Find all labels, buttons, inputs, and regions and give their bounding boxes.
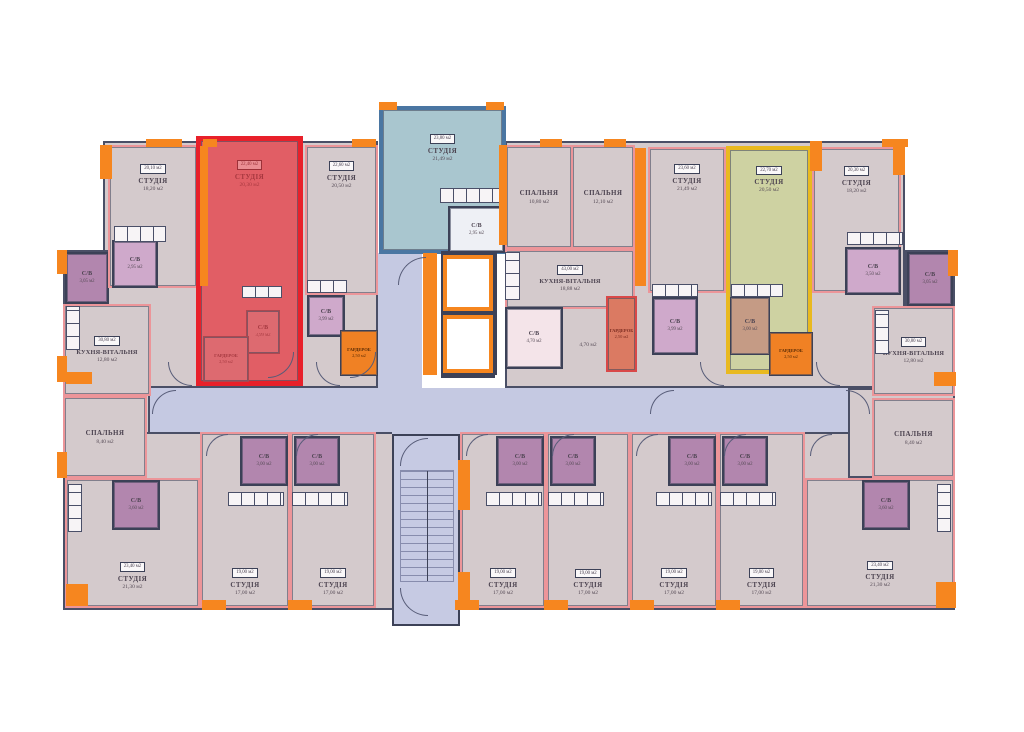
bath-corner-br: С/В3,60 м2	[862, 480, 910, 530]
bath-bottom-6-label: С/В3,00 м2	[737, 454, 752, 467]
room-area: 3,00 м2	[737, 462, 752, 467]
orange-wall-accent	[458, 572, 470, 608]
apartment-red-studio-label: 22,40 м2СТУДІЯ20,30 м2	[235, 160, 264, 188]
room-area: 3,00 м2	[512, 462, 527, 467]
bath-studio-2-label: С/В3,99 м2	[318, 309, 333, 322]
bedroom-right: СПАЛЬНЯ8,40 м2	[872, 398, 955, 478]
room-name: С/В	[881, 498, 892, 505]
bath-center-label: С/В4,70 м2	[526, 331, 541, 344]
bath-bottom-5: С/В3,00 м2	[668, 436, 716, 486]
kitchen-fixtures	[505, 252, 520, 300]
studio-top-1-label: 20,10 м2СТУДІЯ18,20 м2	[138, 164, 167, 192]
room-name: ГАРДЕРОБ	[214, 353, 238, 358]
room-name: СТУДІЯ	[659, 581, 688, 589]
apartment-area-badge: 23,60 м2	[674, 164, 699, 174]
room-area: 20,50 м2	[759, 187, 779, 193]
room-area: 3,99 м2	[318, 317, 333, 322]
bath-yellow: С/В3,00 м2	[730, 297, 770, 355]
wardrobe-red-label: ГАРДЕРОБ2,50 м2	[214, 353, 238, 364]
room-name: КУХНЯ-ВІТАЛЬНЯ	[883, 350, 944, 357]
orange-wall-accent	[200, 146, 208, 286]
room-area: 3,00 м2	[684, 462, 699, 467]
room-area: 3,50 м2	[865, 272, 880, 277]
room-area: 3,00 м2	[256, 462, 271, 467]
room-name: С/В	[131, 498, 142, 505]
orange-wall-accent	[66, 372, 92, 384]
studio-bottom-2-label: 19,00 м2СТУДІЯ17,00 м2	[318, 568, 347, 596]
room-name: СТУДІЯ	[118, 575, 147, 583]
orange-wall-accent	[630, 600, 654, 610]
kitchen-fixtures	[114, 226, 166, 242]
room-name: С/В	[670, 319, 681, 326]
room-area: 17,00 м2	[578, 590, 598, 596]
orange-wall-accent	[499, 145, 507, 245]
room-name: СТУДІЯ	[428, 147, 457, 155]
room-area: 3,05 м2	[79, 279, 94, 284]
room-name: СТУДІЯ	[573, 581, 602, 589]
kitchen-fixtures	[307, 280, 347, 293]
room-area: 21,49 м2	[677, 186, 697, 192]
room-area: 2,50 м2	[784, 355, 798, 360]
room-name: СПАЛЬНЯ	[894, 430, 933, 438]
wardrobe-center: ГАРДЕРОБ2,50 м2	[606, 296, 637, 372]
orange-wall-accent	[146, 139, 182, 147]
kitchen-fixtures	[228, 492, 284, 506]
bedroom-center-2-label: СПАЛЬНЯ12,10 м2	[584, 189, 623, 204]
room-area: 21,30 м2	[123, 584, 143, 590]
bedroom-right-label: СПАЛЬНЯ8,40 м2	[894, 430, 933, 445]
room-name: СПАЛЬНЯ	[584, 189, 623, 197]
room-area: 17,00 м2	[752, 590, 772, 596]
wall-segment	[493, 253, 497, 375]
studio-corner-br-label: 23,40 м2СТУДІЯ21,30 м2	[865, 561, 894, 589]
bath-bottom-2-label: С/В3,00 м2	[309, 454, 324, 467]
room-name: СТУДІЯ	[672, 177, 701, 185]
bedroom-left-label: СПАЛЬНЯ8,40 м2	[86, 429, 125, 444]
bath-corner-bl-label: С/В3,60 м2	[128, 498, 143, 511]
room-name: КУХНЯ-ВІТАЛЬНЯ	[76, 349, 137, 356]
kitchen-living-left-label: 30,80 м2КУХНЯ-ВІТАЛЬНЯ12,80 м2	[76, 336, 137, 363]
apartment-area-badge: 43,00 м2	[557, 265, 582, 275]
kitchen-fixtures	[847, 232, 903, 245]
kitchen-fixtures	[242, 286, 282, 298]
orange-wall-accent	[288, 600, 312, 610]
orange-wall-accent	[934, 372, 956, 386]
orange-wall-accent	[948, 250, 958, 276]
bath-blue-label: С/В2,95 м2	[469, 223, 484, 236]
studio-bottom-1-label: 19,00 м2СТУДІЯ17,00 м2	[230, 568, 259, 596]
kitchen-living-center-label: 43,00 м2КУХНЯ-ВІТАЛЬНЯ18,88 м2	[539, 265, 600, 292]
room-area: 3,00 м2	[742, 327, 757, 332]
studio-bottom-3-label: 19,00 м2СТУДІЯ17,00 м2	[488, 568, 517, 596]
floor-plan-image: С/В3,05 м230,80 м2КУХНЯ-ВІТАЛЬНЯ12,80 м2…	[0, 0, 1024, 732]
room-name: С/В	[745, 319, 756, 326]
room-area: 3,60 м2	[128, 506, 143, 511]
apartment-area-badge: 22,40 м2	[237, 160, 262, 170]
bedroom-center-1: СПАЛЬНЯ10,80 м2	[505, 145, 573, 249]
studio-top-2-label: 22,60 м2СТУДІЯ20,50 м2	[327, 161, 356, 189]
room-area: 3,99 м2	[255, 333, 270, 338]
wall-segment	[441, 251, 495, 255]
orange-wall-accent	[936, 582, 956, 608]
orange-wall-accent	[540, 139, 562, 147]
room-name: С/В	[515, 454, 526, 461]
apartment-area-badge: 22,70 м2	[756, 166, 781, 176]
room-name: С/В	[471, 223, 482, 230]
bath-bottom-3-label: С/В3,00 м2	[512, 454, 527, 467]
room-area: 2,95 м2	[127, 265, 142, 270]
room-area: 12,10 м2	[593, 199, 613, 205]
room-name: С/В	[529, 331, 540, 338]
bath-left-top: С/В3,05 м2	[65, 252, 109, 304]
orange-wall-accent	[100, 145, 112, 179]
room-name: С/В	[868, 264, 879, 271]
kitchen-fixtures	[292, 492, 348, 506]
room-area: 20,30 м2	[240, 182, 260, 188]
orange-wall-accent	[893, 145, 905, 175]
room-area: 17,00 м2	[235, 590, 255, 596]
hall-area-label: 4,70 м2	[566, 342, 610, 352]
orange-wall-accent	[57, 452, 67, 478]
apartment-yellow-studio-label: 22,70 м2СТУДІЯ20,50 м2	[754, 166, 783, 194]
room-name: ГАРДЕРОБ	[779, 348, 803, 353]
kitchen-fixtures	[652, 284, 698, 297]
apartment-area-badge: 19,00 м2	[661, 568, 686, 578]
room-area: 17,00 м2	[493, 590, 513, 596]
wardrobe-yellow-label: ГАРДЕРОБ2,50 м2	[779, 348, 803, 359]
room-name: СТУДІЯ	[842, 179, 871, 187]
room-name: СТУДІЯ	[230, 581, 259, 589]
kitchen-fixtures	[548, 492, 604, 506]
bedroom-center-1-label: СПАЛЬНЯ10,80 м2	[520, 189, 559, 204]
bath-red-label: С/В3,99 м2	[255, 325, 270, 338]
room-area: 18,20 м2	[143, 186, 163, 192]
orange-wall-accent	[458, 460, 470, 510]
stairs-flight	[400, 470, 454, 582]
kitchen-fixtures	[66, 306, 80, 350]
apartment-area-badge: 19,00 м2	[490, 568, 515, 578]
room-area: 3,00 м2	[309, 462, 324, 467]
room-name: С/В	[925, 272, 936, 279]
bath-corner-bl: С/В3,60 м2	[112, 480, 160, 530]
orange-wall-accent	[486, 102, 504, 110]
room-area: 8,40 м2	[96, 439, 113, 445]
bedroom-left: СПАЛЬНЯ8,40 м2	[63, 396, 147, 478]
kitchen-living-right-label: 30,80 м2КУХНЯ-ВІТАЛЬНЯ12,80 м2	[883, 337, 944, 364]
bath-studio-1-label: С/В2,95 м2	[127, 257, 142, 270]
room-area: 2,50 м2	[219, 360, 233, 365]
apartment-area-badge: 19,00 м2	[232, 568, 257, 578]
studio-top-2: 22,60 м2СТУДІЯ20,50 м2	[305, 145, 378, 295]
apartment-area-badge: 22,60 м2	[329, 161, 354, 171]
elevator-shaft	[443, 255, 493, 311]
bath-bottom-3: С/В3,00 м2	[496, 436, 544, 486]
apartment-blue-studio-label: 23,80 м2СТУДІЯ21,49 м2	[428, 134, 457, 162]
bath-right-top: С/В3,05 м2	[907, 252, 953, 306]
studio-top-3: 23,60 м2СТУДІЯ21,49 м2	[648, 147, 726, 293]
room-area: 18,20 м2	[847, 188, 867, 194]
room-area: 21,30 м2	[870, 582, 890, 588]
room-area: 3,05 м2	[922, 280, 937, 285]
orange-wall-accent	[379, 102, 397, 110]
apartment-area-badge: 30,80 м2	[94, 336, 119, 346]
bath-studio-1: С/В2,95 м2	[112, 240, 158, 288]
kitchen-fixtures	[486, 492, 542, 506]
room-name: СТУДІЯ	[318, 581, 347, 589]
room-area: 20,50 м2	[332, 183, 352, 189]
room-area: 3,99 м2	[667, 327, 682, 332]
apartment-area-badge: 19,00 м2	[320, 568, 345, 578]
bath-bottom-4-label: С/В3,00 м2	[565, 454, 580, 467]
bath-blue: С/В2,95 м2	[448, 206, 505, 253]
room-name: С/В	[258, 325, 269, 332]
elevator-shaft	[443, 315, 493, 373]
kitchen-fixtures	[731, 284, 783, 297]
bath-studio-3: С/В3,99 м2	[652, 297, 698, 355]
room-name: СПАЛЬНЯ	[86, 429, 125, 437]
kitchen-fixtures	[875, 310, 889, 354]
room-area: 12,80 м2	[97, 357, 117, 363]
bath-studio-4-label: С/В3,50 м2	[865, 264, 880, 277]
apartment-area-badge: 23,40 м2	[867, 561, 892, 571]
room-area: 21,49 м2	[433, 156, 453, 162]
orange-wall-accent	[635, 148, 646, 286]
orange-wall-accent	[57, 250, 67, 274]
studio-bottom-6-label: 19,00 м2СТУДІЯ17,00 м2	[747, 568, 776, 596]
wardrobe-red: ГАРДЕРОБ2,50 м2	[203, 336, 249, 382]
wardrobe-yellow: ГАРДЕРОБ2,50 м2	[769, 332, 813, 376]
bedroom-center-2: СПАЛЬНЯ12,10 м2	[571, 145, 635, 249]
bath-yellow-label: С/В3,00 м2	[742, 319, 757, 332]
kitchen-fixtures	[937, 484, 951, 532]
room-name: С/В	[687, 454, 698, 461]
orange-wall-accent	[544, 600, 568, 610]
studio-corner-bl-label: 23,40 м2СТУДІЯ21,30 м2	[118, 562, 147, 590]
room-name: СТУДІЯ	[488, 581, 517, 589]
apartment-area-badge: 19,00 м2	[575, 569, 600, 579]
bath-bottom-5-label: С/В3,00 м2	[684, 454, 699, 467]
studio-top-4-label: 20,30 м2СТУДІЯ18,20 м2	[842, 166, 871, 194]
room-area: 17,00 м2	[323, 590, 343, 596]
kitchen-fixtures	[68, 484, 82, 532]
kitchen-fixtures	[656, 492, 712, 506]
bath-right-top-label: С/В3,05 м2	[922, 272, 937, 285]
apartment-area-badge: 23,40 м2	[120, 562, 145, 572]
room-name: СТУДІЯ	[754, 178, 783, 186]
studio-bottom-4-label: 19,00 м2СТУДІЯ17,00 м2	[573, 569, 602, 597]
room-area: 2,95 м2	[469, 231, 484, 236]
room-area: 12,80 м2	[904, 358, 924, 364]
room-name: С/В	[321, 309, 332, 316]
apartment-area-badge: 30,80 м2	[901, 337, 926, 347]
kitchen-fixtures	[440, 188, 500, 203]
room-area: 8,40 м2	[905, 440, 922, 446]
orange-wall-accent	[202, 600, 226, 610]
orange-wall-accent	[352, 139, 376, 147]
room-area: 10,80 м2	[529, 199, 549, 205]
bath-red: С/В3,99 м2	[246, 310, 280, 354]
bath-center: С/В4,70 м2	[505, 307, 563, 369]
stairs-divider	[427, 471, 428, 581]
kitchen-fixtures	[720, 492, 776, 506]
floor-plan-screenshot: С/В3,05 м230,80 м2КУХНЯ-ВІТАЛЬНЯ12,80 м2…	[0, 0, 1024, 732]
room-name: СТУДІЯ	[138, 177, 167, 185]
bath-studio-4: С/В3,50 м2	[845, 247, 901, 295]
room-name: С/В	[130, 257, 141, 264]
studio-top-3-label: 23,60 м2СТУДІЯ21,49 м2	[672, 164, 701, 192]
room-name: СПАЛЬНЯ	[520, 189, 559, 197]
apartment-area-badge: 20,30 м2	[844, 166, 869, 176]
orange-wall-accent	[716, 600, 740, 610]
room-area: 2,50 м2	[615, 335, 629, 340]
apartment-area-badge: 20,10 м2	[140, 164, 165, 174]
room-name: С/В	[259, 454, 270, 461]
bath-bottom-1-label: С/В3,00 м2	[256, 454, 271, 467]
studio-bottom-5-label: 19,00 м2СТУДІЯ17,00 м2	[659, 568, 688, 596]
room-area: 3,00 м2	[565, 462, 580, 467]
room-area: 17,00 м2	[664, 590, 684, 596]
apartment-area-badge: 23,80 м2	[430, 134, 455, 144]
wall-segment	[441, 374, 495, 378]
room-name: СТУДІЯ	[235, 173, 264, 181]
bath-corner-br-label: С/В3,60 м2	[878, 498, 893, 511]
room-name: С/В	[82, 271, 93, 278]
room-area: 3,60 м2	[878, 506, 893, 511]
bath-studio-3-label: С/В3,99 м2	[667, 319, 682, 332]
orange-wall-accent	[66, 584, 88, 606]
orange-wall-accent	[810, 141, 822, 171]
room-name: СТУДІЯ	[747, 581, 776, 589]
wardrobe-center-label: ГАРДЕРОБ2,50 м2	[610, 328, 634, 339]
bath-left-top-label: С/В3,05 м2	[79, 271, 94, 284]
room-name: СТУДІЯ	[865, 573, 894, 581]
room-name: КУХНЯ-ВІТАЛЬНЯ	[539, 278, 600, 285]
room-area: 18,88 м2	[560, 286, 580, 292]
apartment-area-badge: 19,00 м2	[749, 568, 774, 578]
room-name: ГАРДЕРОБ	[610, 328, 634, 333]
room-area: 4,70 м2	[526, 339, 541, 344]
corridor	[150, 388, 848, 432]
bath-bottom-1: С/В3,00 м2	[240, 436, 288, 486]
orange-wall-accent	[604, 139, 626, 147]
room-name: СТУДІЯ	[327, 174, 356, 182]
